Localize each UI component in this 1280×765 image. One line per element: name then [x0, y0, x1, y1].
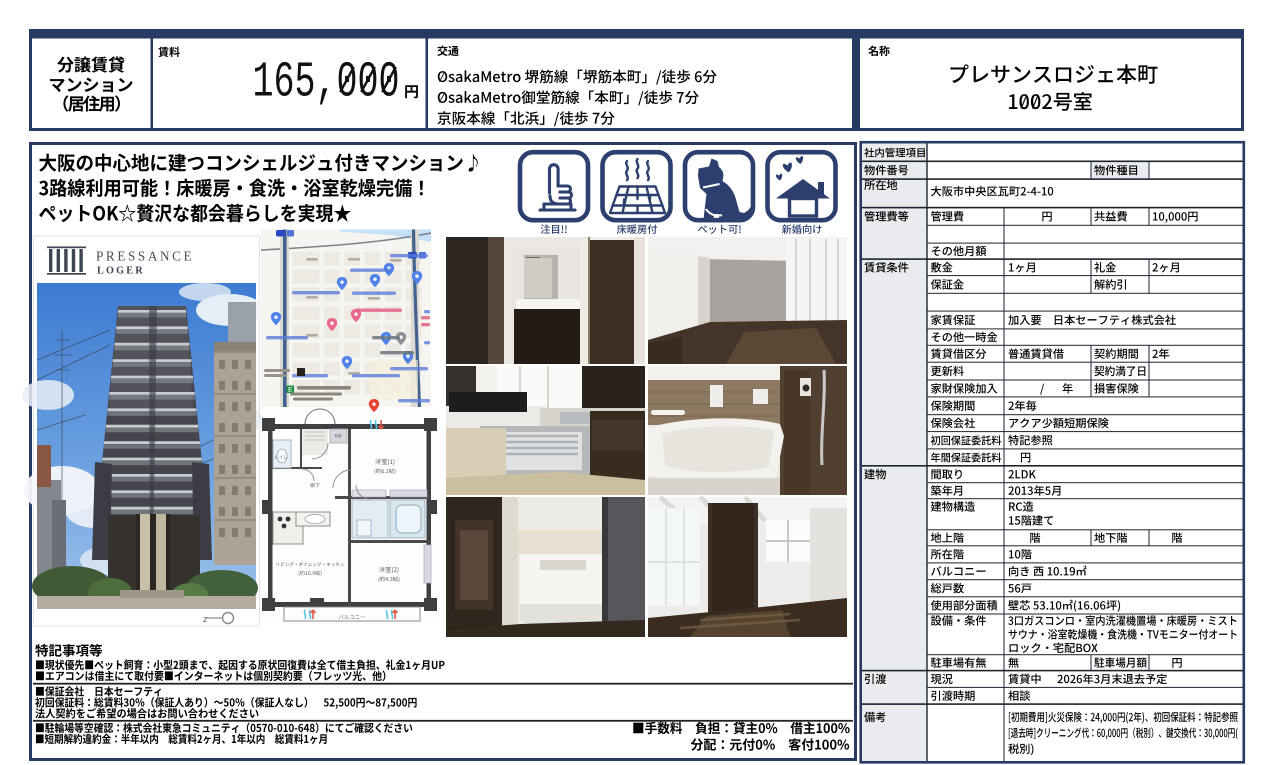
- svg-text:165,000: 165,000: [253, 54, 400, 111]
- svg-text:PRESSANCE: PRESSANCE: [96, 249, 194, 264]
- svg-text:LOGER: LOGER: [97, 266, 145, 277]
- svg-text:z: z: [203, 614, 208, 624]
